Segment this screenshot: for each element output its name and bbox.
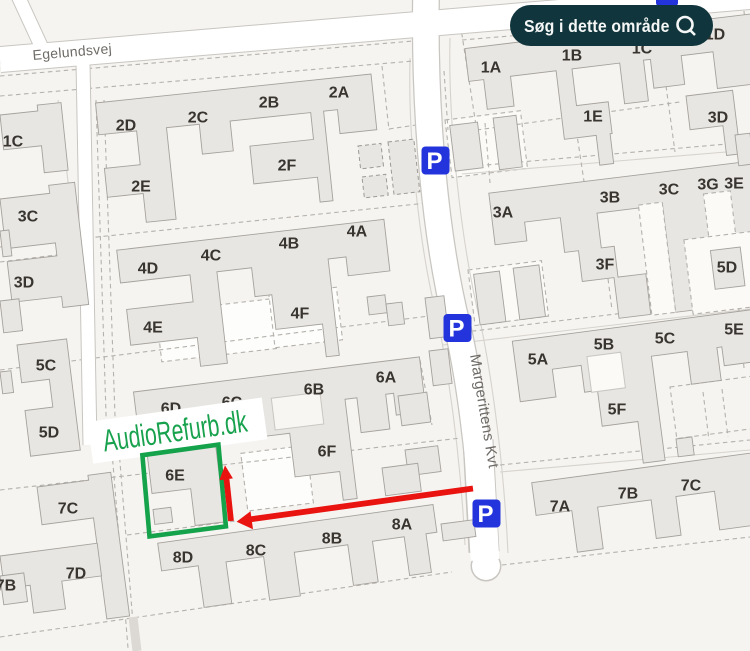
svg-text:6E: 6E — [165, 468, 185, 485]
svg-text:7B: 7B — [0, 578, 16, 595]
svg-text:2E: 2E — [131, 179, 151, 196]
svg-text:7D: 7D — [66, 566, 86, 583]
svg-text:1A: 1A — [481, 60, 502, 77]
svg-text:7B: 7B — [618, 486, 638, 503]
svg-text:P: P — [448, 316, 464, 343]
svg-text:4A: 4A — [347, 224, 368, 241]
svg-text:5F: 5F — [608, 402, 627, 419]
svg-text:3D: 3D — [708, 110, 728, 127]
svg-text:4E: 4E — [143, 320, 163, 337]
svg-text:P: P — [477, 501, 493, 528]
svg-text:7C: 7C — [58, 501, 79, 518]
svg-text:5D: 5D — [39, 425, 59, 442]
svg-text:2D: 2D — [116, 118, 136, 135]
svg-text:6A: 6A — [376, 370, 397, 387]
svg-text:3E: 3E — [724, 176, 744, 193]
svg-text:1B: 1B — [562, 48, 582, 65]
svg-text:2F: 2F — [278, 158, 297, 175]
svg-text:4F: 4F — [291, 306, 310, 323]
svg-text:8A: 8A — [392, 517, 413, 534]
svg-text:7A: 7A — [550, 499, 571, 516]
svg-text:4C: 4C — [201, 248, 222, 265]
svg-text:6B: 6B — [304, 382, 324, 399]
svg-text:4D: 4D — [138, 261, 158, 278]
svg-text:5D: 5D — [717, 260, 737, 277]
svg-text:3A: 3A — [493, 205, 514, 222]
svg-text:3C: 3C — [18, 209, 39, 226]
svg-text:2A: 2A — [329, 85, 350, 102]
svg-text:2B: 2B — [259, 95, 279, 112]
svg-text:5A: 5A — [528, 352, 549, 369]
svg-text:8D: 8D — [173, 550, 193, 567]
svg-text:1E: 1E — [583, 109, 603, 126]
svg-text:3D: 3D — [14, 275, 34, 292]
svg-text:5C: 5C — [655, 331, 676, 348]
svg-text:8C: 8C — [246, 543, 267, 560]
svg-text:3B: 3B — [600, 190, 620, 207]
svg-text:5E: 5E — [724, 322, 744, 339]
svg-text:P: P — [426, 148, 442, 175]
svg-text:1C: 1C — [3, 134, 24, 151]
svg-text:8B: 8B — [322, 531, 342, 548]
svg-text:3C: 3C — [659, 182, 680, 199]
svg-text:3F: 3F — [596, 257, 615, 274]
svg-text:2C: 2C — [188, 110, 209, 127]
svg-text:6F: 6F — [318, 444, 337, 461]
svg-text:5B: 5B — [594, 337, 614, 354]
svg-text:4B: 4B — [279, 236, 299, 253]
svg-text:7C: 7C — [681, 478, 702, 495]
svg-text:5C: 5C — [36, 358, 57, 375]
svg-text:3G: 3G — [697, 177, 718, 194]
svg-text:Søg i dette område: Søg i dette område — [524, 16, 670, 36]
